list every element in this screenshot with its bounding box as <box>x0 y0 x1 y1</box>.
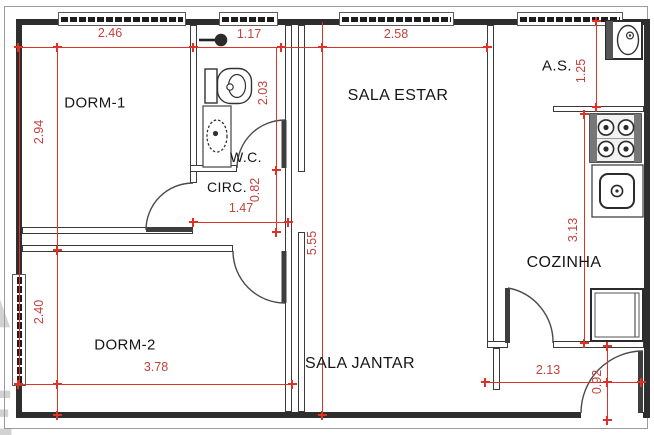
dim-marker <box>53 411 62 420</box>
dim-marker <box>603 342 612 351</box>
wall-segment <box>298 232 305 412</box>
room-label-circ: CIRC. <box>207 179 247 195</box>
dim-dorm1-height: 2.94 <box>32 120 46 144</box>
dim-sala-total-height: 5.55 <box>305 231 319 255</box>
window-dorm1 <box>58 12 186 26</box>
dim-marker <box>277 43 286 52</box>
dim-marker <box>272 228 281 237</box>
dim-line <box>276 47 278 232</box>
dim-marker <box>53 246 62 255</box>
dim-wc-width: 1.17 <box>237 27 261 41</box>
dim-line <box>584 112 586 344</box>
window-wc <box>219 12 278 26</box>
dim-marker <box>637 378 646 387</box>
room-label-wc: W.C. <box>230 149 262 165</box>
dim-marker <box>284 218 293 227</box>
dim-marker <box>318 411 327 420</box>
dim-marker <box>189 218 198 227</box>
dim-marker <box>288 380 297 389</box>
wall-segment <box>190 165 237 172</box>
dim-marker <box>603 416 612 425</box>
dim-marker <box>592 103 601 112</box>
dim-marker <box>53 380 62 389</box>
room-label-sala-estar: SALA ESTAR <box>348 87 449 105</box>
room-label-sala-jantar: SALA JANTAR <box>305 355 415 373</box>
dim-marker <box>14 380 23 389</box>
dim-marker <box>481 378 490 387</box>
dim-line <box>485 382 641 384</box>
wall-segment <box>643 412 650 418</box>
dim-marker <box>592 17 601 26</box>
room-label-dorm2: DORM-2 <box>94 337 156 354</box>
wall-segment <box>487 341 508 348</box>
wall-segment <box>553 341 644 348</box>
wall-segment <box>493 348 500 390</box>
wall-segment <box>22 227 193 234</box>
dim-marker <box>14 43 23 52</box>
dim-marker <box>483 43 492 52</box>
window-as <box>517 12 623 26</box>
dim-line <box>18 47 487 49</box>
dim-marker <box>189 43 198 52</box>
room-label-as: A.S. <box>542 58 572 75</box>
dim-dorm2-width: 3.78 <box>144 360 168 374</box>
wall-segment <box>487 25 494 343</box>
dim-dorm1-width: 2.46 <box>98 26 122 40</box>
room-label-dorm1: DORM-1 <box>64 95 126 112</box>
window-sala-estar <box>339 12 454 26</box>
dim-marker <box>53 43 62 52</box>
room-label-cozinha: COZINHA <box>527 254 602 272</box>
dim-marker <box>580 110 589 119</box>
dim-wc-height: 2.03 <box>256 81 270 105</box>
dim-line <box>57 47 59 415</box>
dim-line <box>19 47 21 386</box>
dim-circ-height: 0.82 <box>248 178 262 202</box>
wall-segment <box>644 19 650 418</box>
dim-cozinha-height: 3.13 <box>566 218 580 242</box>
floor-plan-canvas: A E <box>0 0 654 435</box>
dim-dorm2-height: 2.40 <box>32 300 46 324</box>
dim-as-height: 1.25 <box>574 59 588 83</box>
wall-segment <box>16 412 581 418</box>
dim-sala-estar-width: 2.58 <box>384 27 408 41</box>
dim-entry-depth: 0.92 <box>590 370 604 394</box>
dim-line <box>596 20 598 108</box>
dim-circ-width: 1.47 <box>229 201 253 215</box>
dim-marker <box>272 166 281 175</box>
dim-marker <box>318 43 327 52</box>
dim-marker <box>580 339 589 348</box>
dim-cozinha-width: 2.13 <box>536 363 560 377</box>
